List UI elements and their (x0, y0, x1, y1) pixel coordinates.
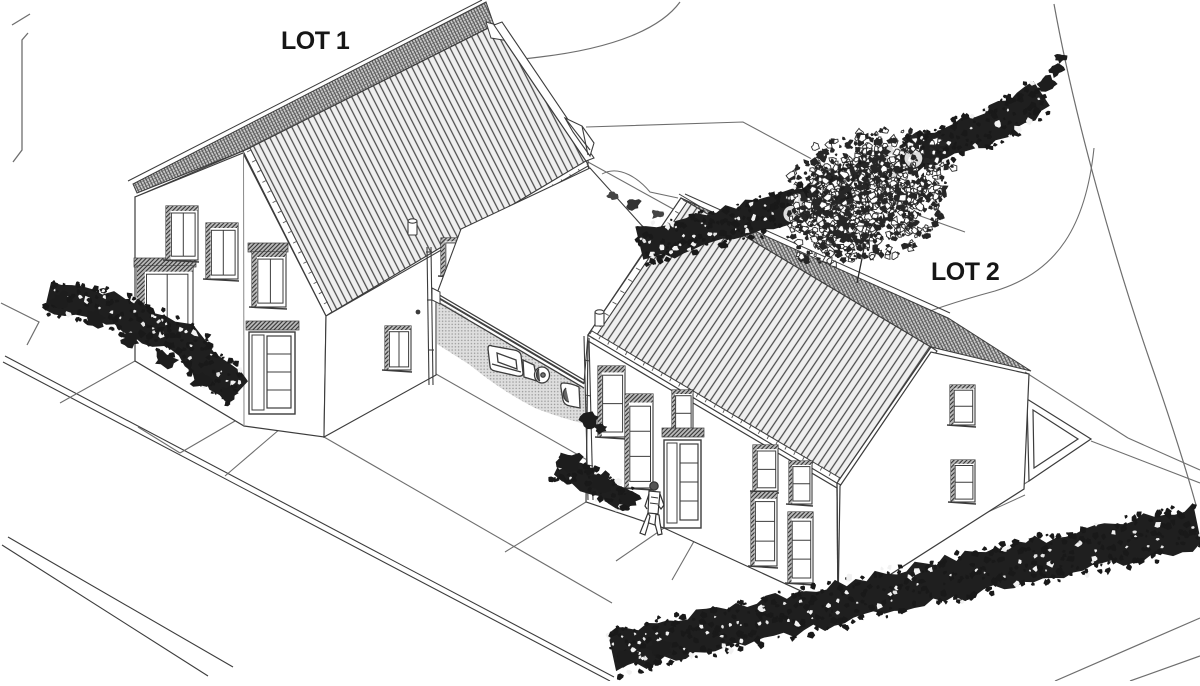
svg-text:LOT 2: LOT 2 (931, 258, 999, 286)
svg-text:LOT 1: LOT 1 (281, 27, 350, 55)
